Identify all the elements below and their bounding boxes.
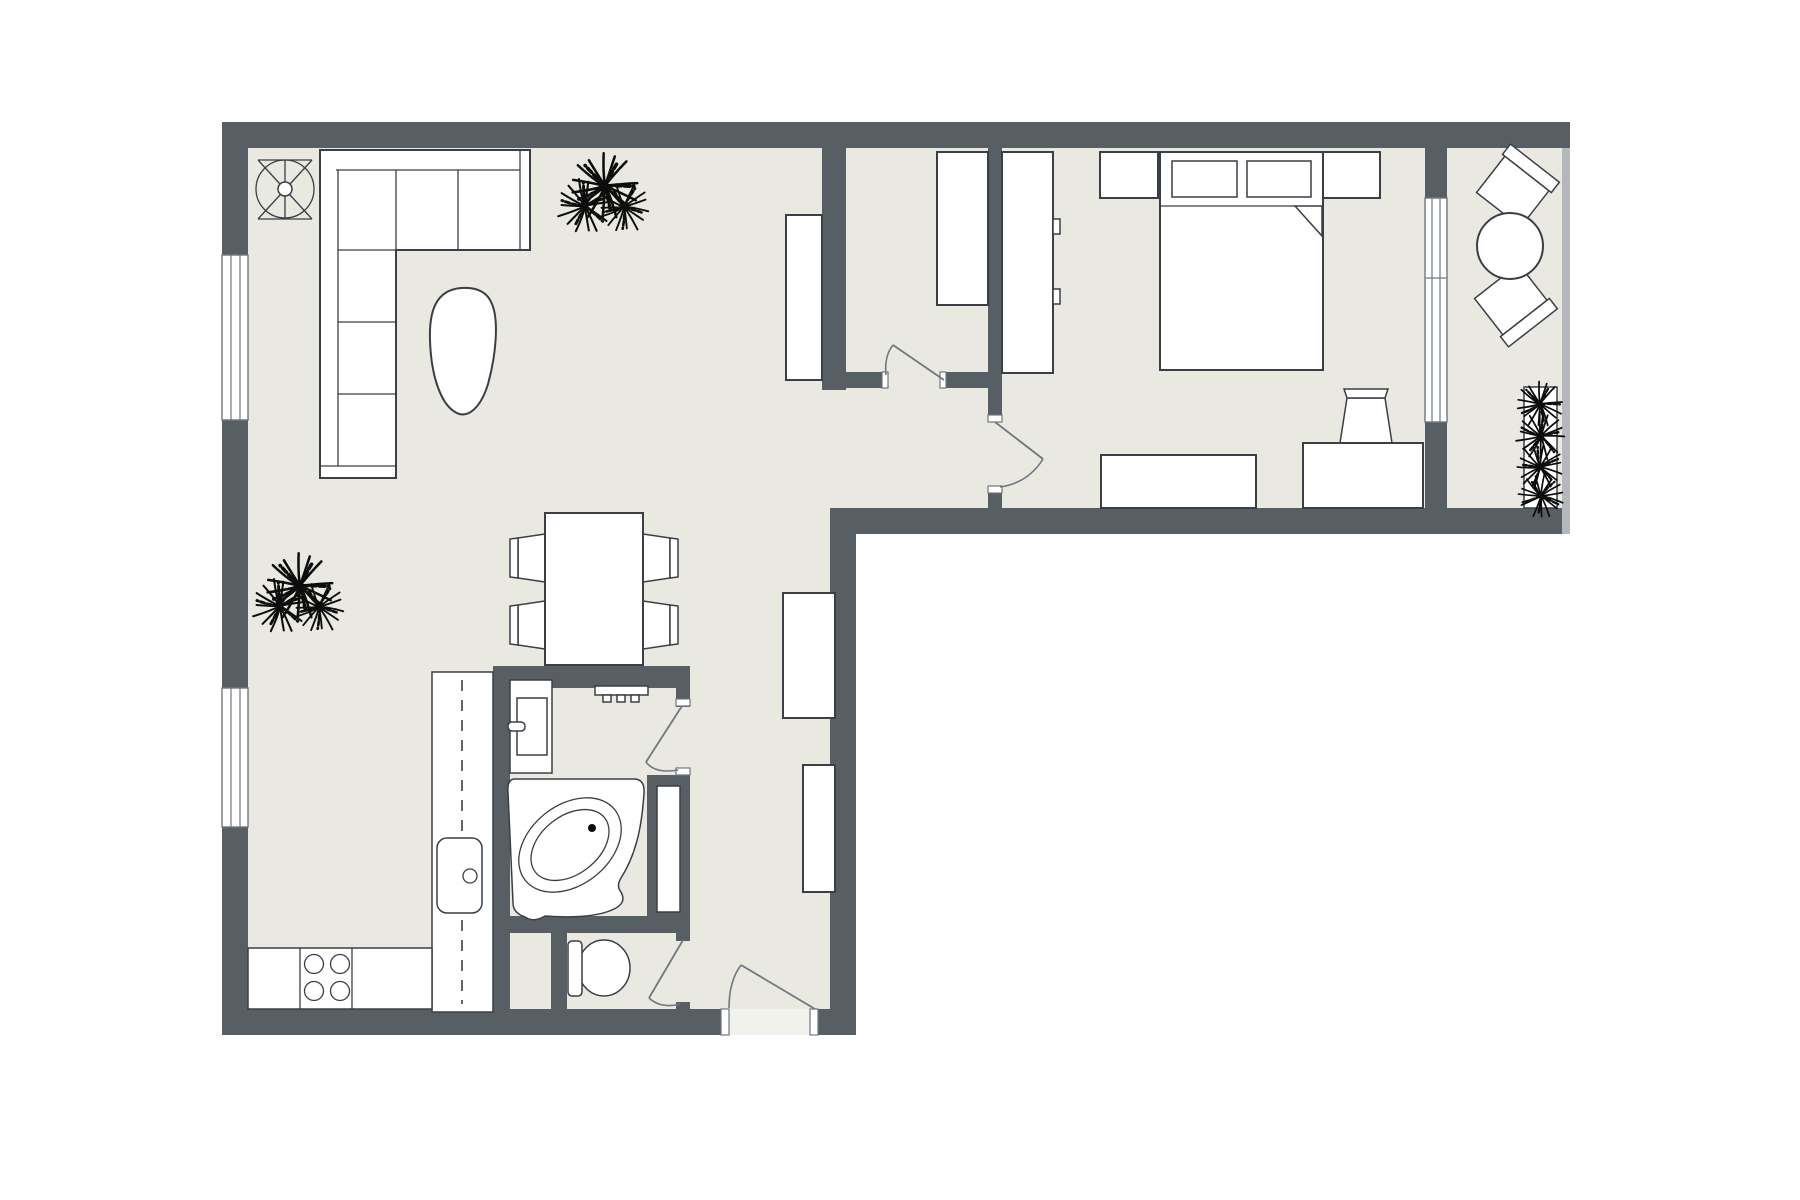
wall-balcony-divider-top: [1425, 148, 1447, 198]
bathroom-vanity-sink: [508, 680, 552, 773]
wall-bedroom-west-upper: [988, 148, 1002, 415]
room-wc: [568, 940, 630, 996]
wall-top: [222, 122, 1570, 148]
shaft-niche: [657, 786, 680, 912]
dining-chair: [510, 601, 545, 649]
faucet: [508, 722, 525, 731]
balcony-table: [1477, 213, 1543, 279]
nightstand-left: [1100, 152, 1158, 198]
living-cabinet: [786, 215, 822, 380]
toilet-tank: [568, 941, 582, 996]
corner-bathtub: [500, 778, 644, 919]
window-left-lower: [222, 688, 248, 827]
floor-plan-canvas: [0, 0, 1800, 1200]
wardrobe-handle: [1053, 289, 1060, 304]
pillow: [1172, 161, 1237, 197]
desk-chair: [1340, 398, 1392, 443]
desk: [1303, 443, 1423, 508]
wall-wc-west: [551, 933, 567, 1012]
tub-drain: [588, 824, 596, 832]
bedroom-dresser: [1101, 455, 1256, 508]
bedroom-wardrobe: [1002, 152, 1060, 373]
wall-balcony-railing: [1562, 148, 1570, 534]
dining-table: [545, 513, 643, 665]
wall-wc-east-stub-top: [676, 933, 690, 941]
wall-balcony-divider-bottom: [1425, 422, 1447, 534]
desk-chair-backrest: [1344, 389, 1388, 398]
toilet: [568, 940, 630, 996]
kitchen-sink: [437, 838, 482, 913]
wall-wc-east-stub-bottom: [676, 1002, 690, 1012]
dining-chair: [643, 601, 678, 649]
window-left-upper: [222, 255, 248, 420]
wardrobe-handle: [1053, 219, 1060, 234]
kitchen-counter-bottom: [248, 948, 432, 1009]
wall-bathroom-wc-divider: [493, 916, 690, 933]
hallway-cabinet-tall: [783, 593, 835, 718]
nightstand-right: [1322, 152, 1380, 198]
closet-wardrobe: [937, 152, 988, 305]
room-closet: [937, 152, 988, 305]
wall-bottom-bedroom-balcony: [830, 508, 1570, 534]
wall-closet-south-left: [846, 372, 882, 388]
wall-bathroom-west: [493, 666, 510, 1012]
dining-chair: [510, 534, 545, 582]
hallway-cabinet-narrow: [803, 765, 835, 892]
window-balcony-slider: [1425, 198, 1447, 422]
pillow: [1247, 161, 1311, 197]
wall-closet-west: [822, 148, 846, 390]
dining-chair: [643, 534, 678, 582]
wall-closet-south-right: [946, 372, 988, 388]
double-bed: [1160, 152, 1323, 370]
floor-plan-page: [0, 0, 1800, 1200]
